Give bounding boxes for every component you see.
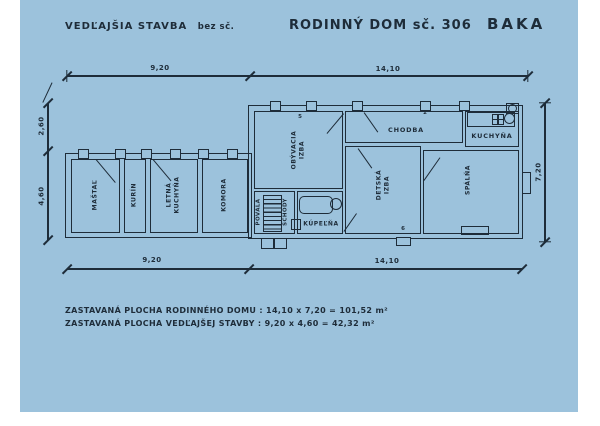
title-outbuilding: VEDĽAJŠIA STAVBA bez sč. <box>65 21 234 32</box>
room-label-letna-kuchyna: LETNÁ KUCHYŇA <box>166 176 181 213</box>
room-label-kurin: KURÍN <box>130 183 138 207</box>
dim-label-bottom-left: 9,20 <box>142 256 161 264</box>
window-tab <box>198 149 209 159</box>
staircase-to-attic <box>263 195 282 232</box>
bathtub <box>299 196 333 214</box>
window-tag-2: 2 <box>423 110 427 116</box>
window-tab <box>141 149 152 159</box>
radiator <box>461 226 489 235</box>
doorstep <box>274 238 287 249</box>
dim-label-right: 7,20 <box>535 162 544 181</box>
dim-label-top-left: 9,20 <box>150 64 169 72</box>
window-tab <box>352 101 363 111</box>
window-tab <box>227 149 238 159</box>
note-outbuilding-area: ZASTAVANÁ PLOCHA VEDĽAJŠEJ STAVBY : 9,20… <box>65 319 375 328</box>
room-label-detska-izba: DETSKÁ IZBA <box>376 170 391 200</box>
room-label-chodba: CHODBA <box>388 126 424 134</box>
dim-endbar <box>527 70 528 82</box>
dimension-line-top <box>67 75 528 77</box>
stove-burner <box>498 119 504 125</box>
window-tab <box>396 237 411 246</box>
title-house: RODINNÝ DOM sč. 306 <box>289 18 472 33</box>
window-tab <box>522 172 531 194</box>
boiler <box>508 104 517 113</box>
window-tab <box>459 101 470 111</box>
kitchen-sink <box>504 113 515 124</box>
dim-label-bottom-right: 14,10 <box>375 257 400 265</box>
room-label-komora: KOMORA <box>220 178 228 211</box>
dimension-line-right <box>544 103 546 242</box>
dim-endbar <box>66 70 67 82</box>
title-outbuilding-text: VEDĽAJŠIA STAVBA <box>65 21 187 32</box>
title-locality: BAKA <box>487 15 545 33</box>
dim-endbar <box>539 102 551 103</box>
dimension-line-bottom <box>67 268 522 270</box>
window-tab <box>115 149 126 159</box>
washbasin <box>330 198 342 210</box>
room-label-schody: SCHODY <box>283 198 290 226</box>
window-tab <box>78 149 89 159</box>
room-label-mastal: MAŠTAĽ <box>91 180 99 211</box>
note-house-area: ZASTAVANÁ PLOCHA RODINNÉHO DOMU : 14,10 … <box>65 306 388 315</box>
doorstep <box>261 238 274 249</box>
room-label-spalna: SPÁLŇA <box>464 165 472 195</box>
room-label-kuchyna: KUCHYŇA <box>471 132 512 140</box>
title-outbuilding-suffix: bez sč. <box>198 22 235 32</box>
window-tab <box>306 101 317 111</box>
dim-label-top-right: 14,10 <box>376 65 401 73</box>
window-tab <box>170 149 181 159</box>
dim-label-left-upper: 2,60 <box>38 116 47 135</box>
dimension-line-left <box>47 103 49 240</box>
dim-label-left-lower: 4,60 <box>38 186 47 205</box>
window-tag-6: 6 <box>401 226 405 232</box>
dim-endbar <box>539 241 551 242</box>
room-label-povala: POVALA <box>256 199 263 226</box>
window-tag-5: 5 <box>298 114 302 120</box>
bathroom-heater-symbol <box>291 219 301 230</box>
room-label-kupelna: KÚPEĽŇA <box>303 221 339 228</box>
scanned-floor-plan-page: VEDĽAJŠIA STAVBA bez sč. RODINNÝ DOM sč.… <box>0 0 600 426</box>
window-tab <box>270 101 281 111</box>
room-label-obyvacia-izba: OBÝVACIA IZBA <box>291 131 306 170</box>
